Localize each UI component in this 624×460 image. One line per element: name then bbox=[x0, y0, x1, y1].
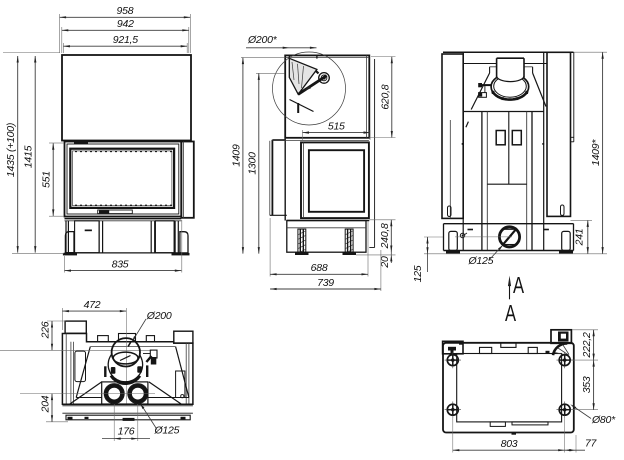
svg-text:1409*: 1409* bbox=[590, 139, 602, 166]
svg-text:803: 803 bbox=[501, 438, 518, 450]
svg-text:353: 353 bbox=[581, 376, 593, 393]
svg-text:241: 241 bbox=[574, 229, 586, 247]
svg-text:620,8: 620,8 bbox=[379, 84, 391, 109]
svg-text:958: 958 bbox=[117, 5, 134, 17]
svg-text:176: 176 bbox=[118, 426, 135, 438]
svg-text:1300: 1300 bbox=[246, 152, 258, 175]
svg-text:Ø200: Ø200 bbox=[146, 310, 172, 322]
svg-text:1435 (+100): 1435 (+100) bbox=[5, 123, 17, 177]
svg-text:240,8: 240,8 bbox=[379, 223, 391, 249]
svg-text:Ø200*: Ø200* bbox=[247, 34, 278, 46]
svg-text:A: A bbox=[513, 273, 525, 298]
svg-text:835: 835 bbox=[112, 258, 129, 270]
svg-text:125: 125 bbox=[412, 265, 424, 282]
svg-text:Ø80*: Ø80* bbox=[591, 414, 616, 426]
svg-text:226: 226 bbox=[40, 321, 52, 339]
svg-text:551: 551 bbox=[41, 171, 53, 188]
svg-text:Ø125: Ø125 bbox=[154, 425, 180, 437]
svg-text:472: 472 bbox=[84, 299, 101, 311]
svg-text:1415: 1415 bbox=[23, 145, 35, 168]
svg-text:515: 515 bbox=[328, 120, 345, 132]
svg-text:A: A bbox=[505, 301, 517, 326]
svg-text:921,5: 921,5 bbox=[113, 34, 138, 46]
svg-text:688: 688 bbox=[311, 262, 328, 274]
svg-text:1409: 1409 bbox=[230, 144, 242, 167]
svg-text:222,2: 222,2 bbox=[581, 332, 593, 358]
svg-text:77: 77 bbox=[585, 438, 598, 450]
svg-text:942: 942 bbox=[117, 18, 134, 30]
svg-text:Ø125: Ø125 bbox=[468, 255, 494, 267]
svg-text:739: 739 bbox=[317, 277, 334, 289]
svg-text:204: 204 bbox=[40, 395, 52, 413]
